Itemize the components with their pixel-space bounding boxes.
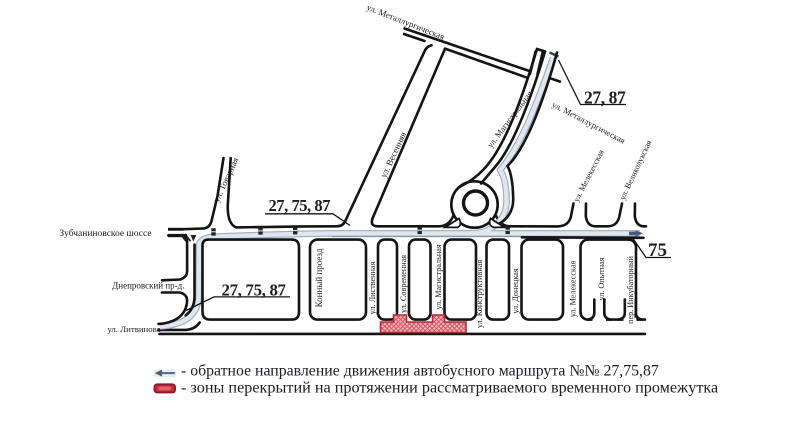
svg-text:ул. Лиственная: ул. Лиственная (368, 261, 377, 314)
svg-text:ул. Современная: ул. Современная (399, 255, 408, 313)
svg-text:ул. Донецкая: ул. Донецкая (511, 268, 520, 313)
svg-text:ул. Магистральная: ул. Магистральная (434, 244, 443, 310)
svg-text:ул. Литвинова: ул. Литвинова (107, 324, 160, 334)
svg-text:пер. Инкубаторный: пер. Инкубаторный (626, 255, 635, 323)
svg-text:Днепровский пр-д.: Днепровский пр-д. (112, 281, 184, 291)
svg-text:ул. Товарная: ул. Товарная (211, 156, 240, 204)
svg-text:Конный проезд: Конный проезд (314, 248, 324, 307)
svg-text:ул. Мелекесская: ул. Мелекесская (569, 260, 578, 317)
svg-text:27, 75, 87: 27, 75, 87 (269, 196, 331, 215)
svg-text:ул. Великолукская: ул. Великолукская (618, 139, 654, 202)
svg-text:ул. Конструктивная: ул. Конструктивная (475, 260, 484, 329)
svg-text:ул. Мелекесская: ул. Мелекесская (572, 148, 606, 203)
svg-text:- зоны перекрытий на протяжени: - зоны перекрытий на протяжении рассматр… (181, 379, 718, 397)
svg-text:Зубчаниновское шоссе: Зубчаниновское шоссе (59, 228, 151, 239)
svg-text:ул. Опытная: ул. Опытная (597, 257, 606, 300)
svg-text:- обратное направление движени: - обратное направление движения автобусн… (181, 363, 659, 380)
